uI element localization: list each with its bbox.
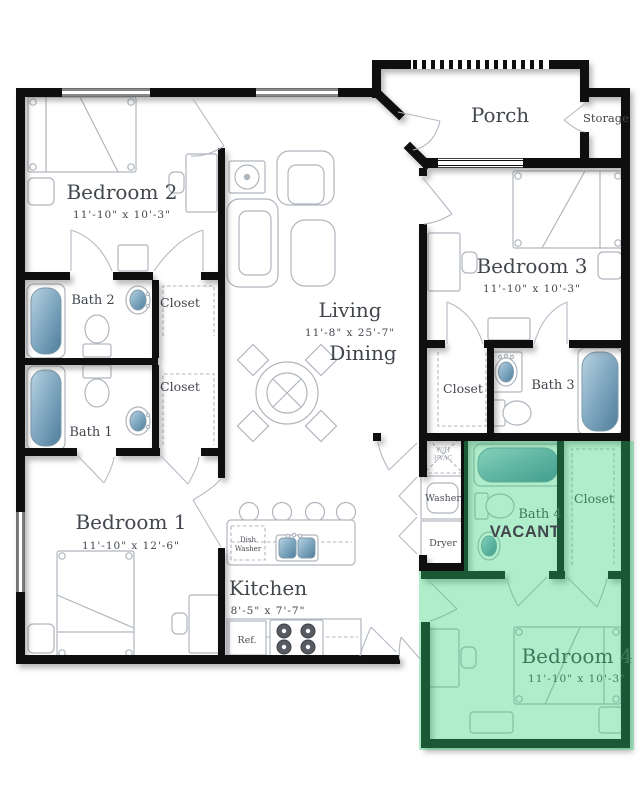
porch-railing <box>411 60 549 69</box>
toilet-icon <box>85 379 109 407</box>
bedroom3-label: Bedroom 3 <box>476 254 587 278</box>
door-arc <box>191 99 224 156</box>
bed-icon <box>513 171 623 248</box>
kitchen-dims: 8'-5" x 7'-7" <box>231 605 306 617</box>
chair-icon <box>462 252 477 273</box>
porch-label: Porch <box>471 103 529 127</box>
dining-label: Dining <box>329 341 397 365</box>
closet-outline <box>163 286 214 336</box>
dresser-icon <box>118 245 148 271</box>
fridge-label: Ref. <box>238 635 257 646</box>
bath1-label: Bath 1 <box>69 425 112 440</box>
bedroom2-dims: 11'-10" x 10'-3" <box>73 209 171 221</box>
floor-plan-page: Bedroom 2 11'-10" x 10'-3" Porch Storage… <box>0 0 640 800</box>
washer-label: Washer <box>425 493 461 504</box>
door-arc <box>78 456 114 483</box>
nightstand-icon <box>28 624 54 653</box>
vacant-overlay-bedroom4 <box>419 571 634 750</box>
storage-label: Storage <box>583 111 629 125</box>
stool-icon <box>240 503 259 522</box>
door-arc <box>154 230 203 271</box>
dishwasher-label-2: Washer <box>235 545 262 553</box>
door-arc <box>534 302 567 344</box>
window <box>256 89 338 97</box>
hvac-label-1: W/H <box>436 447 449 454</box>
closet-label: Closet <box>160 295 200 310</box>
bedroom1-label: Bedroom 1 <box>75 510 186 534</box>
nightstand-icon <box>28 178 54 205</box>
vacant-overlay-bath4 <box>464 441 634 571</box>
bed-icon <box>57 551 134 658</box>
door-arc <box>71 230 112 271</box>
dryer-label: Dryer <box>429 538 457 549</box>
door-arc <box>399 637 420 660</box>
bedroom3-dims: 11'-10" x 10'-3" <box>483 283 581 295</box>
door-arc <box>161 456 199 484</box>
living-label: Living <box>318 298 381 322</box>
door-arc <box>447 302 483 344</box>
stool-icon <box>273 503 292 522</box>
dining-table-icon <box>237 344 336 441</box>
desk-icon <box>189 595 220 653</box>
living-dims: 11'-8" x 25'-7" <box>305 327 395 339</box>
dishwasher-label-1: Dish <box>240 536 256 544</box>
door-arc <box>398 112 440 150</box>
window <box>62 89 150 97</box>
hvac-label-2: HVAC <box>434 455 452 462</box>
toilet-icon <box>85 315 109 343</box>
closet-label: Closet <box>443 381 483 396</box>
door-arc <box>193 479 221 547</box>
stool-icon <box>306 503 325 522</box>
loveseat-icon <box>277 151 334 205</box>
window <box>17 512 25 592</box>
sofa-icon <box>227 199 278 287</box>
bifold-door <box>399 477 417 554</box>
desk-icon <box>186 154 217 212</box>
chair-icon <box>172 613 187 634</box>
vacant-status-badge: VACANT <box>490 523 561 541</box>
bedroom1-dims: 11'-10" x 12'-6" <box>82 540 180 552</box>
bed-icon <box>28 97 136 172</box>
bath3-label: Bath 3 <box>531 378 574 393</box>
desk-icon <box>428 233 460 291</box>
closet-label: Closet <box>160 379 200 394</box>
door-arc <box>423 178 452 224</box>
stove-icon <box>270 620 323 657</box>
door-arc <box>360 627 396 656</box>
bath2-label: Bath 2 <box>71 293 114 308</box>
stool-icon <box>337 503 356 522</box>
nightstand-icon <box>598 252 622 279</box>
toilet-icon <box>503 401 531 425</box>
window <box>438 159 523 167</box>
living-furniture <box>227 151 337 442</box>
bedroom1-furniture <box>28 551 220 658</box>
floor-plan-image: Bedroom 2 11'-10" x 10'-3" Porch Storage… <box>0 0 640 800</box>
bedroom2-label: Bedroom 2 <box>66 180 177 204</box>
shelf-icon <box>488 318 530 340</box>
door-arc <box>378 442 417 470</box>
kitchen-label: Kitchen <box>229 576 307 600</box>
coffee-table-icon <box>291 220 335 286</box>
